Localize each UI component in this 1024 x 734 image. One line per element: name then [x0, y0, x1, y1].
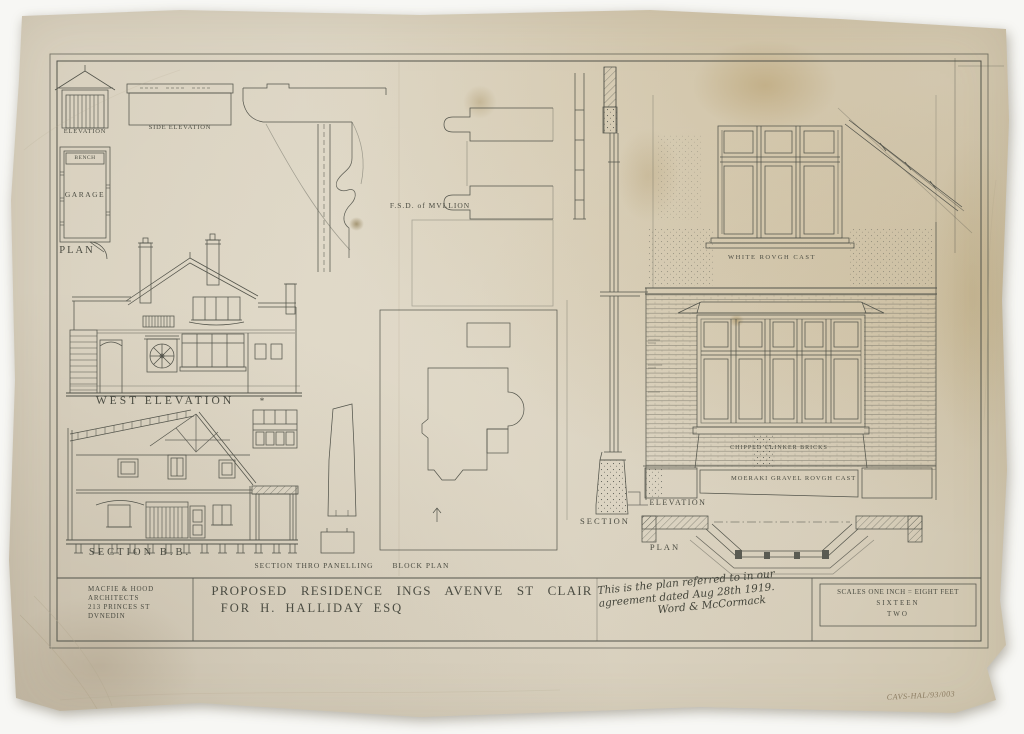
label-west-elevation: WEST ELEVATION: [75, 396, 255, 408]
label-garage-elevation: ELEVATION: [56, 129, 114, 136]
label-garage-room: GARAGE: [60, 191, 110, 199]
scale-line2: SIXTEEN: [822, 599, 974, 607]
window-wall-section-drawing: [567, 67, 648, 520]
block-plan-drawing: [380, 310, 557, 550]
garage-elevation-drawing: [55, 65, 115, 128]
architect-city: DVNEDIN: [88, 612, 188, 621]
label-moeraki-gravel: MOERAKI GRAVEL ROVGH CAST: [731, 476, 853, 483]
label-garage-bench: BENCH: [66, 156, 104, 162]
panelling-section-drawing: [253, 404, 356, 553]
drawing-title-line2: FOR H. HALLIDAY ESQ: [212, 602, 412, 615]
label-garage-plan: PLAN: [48, 246, 106, 257]
scale-line1: SCALES ONE INCH = EIGHT FEET: [822, 588, 974, 596]
drawing-linework: [0, 0, 1024, 734]
label-section-thro-panelling: SECTION THRO PANELLING: [240, 562, 388, 570]
drawing-title-line1: PROPOSED RESIDENCE INGS AVENVE ST CLAIR: [206, 584, 598, 597]
label-block-plan: BLOCK PLAN: [383, 562, 459, 570]
label-fsd-of-mullion: F.S.D. of MVLLION: [380, 202, 480, 210]
title-block-architect: MACFIE & HOOD ARCHITECTS 213 PRINCES ST …: [88, 585, 188, 621]
architect-name: MACFIE & HOOD: [88, 585, 188, 594]
scanned-drawing-background: ELEVATION SIDE ELEVATION BENCH GARAGE PL…: [0, 0, 1024, 734]
label-garage-side-elevation: SIDE ELEVATION: [126, 125, 234, 132]
label-west-elevation-mark: *: [256, 397, 268, 406]
paper-shadow: ELEVATION SIDE ELEVATION BENCH GARAGE PL…: [0, 0, 1024, 734]
garage-plan-drawing: [60, 147, 110, 259]
bay-window-plan-drawing: [642, 516, 922, 574]
barge-board-detail-drawing: [838, 58, 1004, 253]
west-elevation-drawing: [66, 234, 302, 396]
mullion-fsd-drawing: [243, 84, 553, 306]
label-white-rough-cast: WHITE ROVGH CAST: [728, 255, 816, 262]
architect-street: 213 PRINCES ST: [88, 603, 188, 612]
label-wall-section: SECTION: [570, 517, 640, 526]
bay-window-elevation-drawing: [643, 95, 937, 500]
architect-role: ARCHITECTS: [88, 594, 188, 603]
label-chipped-clinker-bricks: CHIPPED CLINKER BRICKS: [726, 445, 832, 451]
garage-side-elevation-drawing: [127, 84, 233, 125]
label-section-bb: SECTION B.B.: [70, 548, 210, 559]
label-bay-elevation: ELEVATION: [648, 499, 708, 507]
label-bay-plan: PLAN: [646, 543, 684, 552]
scale-block: SCALES ONE INCH = EIGHT FEET SIXTEEN TWO: [822, 588, 974, 618]
drawing-sheet: ELEVATION SIDE ELEVATION BENCH GARAGE PL…: [0, 0, 1024, 734]
section-bb-drawing: [66, 410, 298, 553]
scale-line3: TWO: [822, 610, 974, 618]
